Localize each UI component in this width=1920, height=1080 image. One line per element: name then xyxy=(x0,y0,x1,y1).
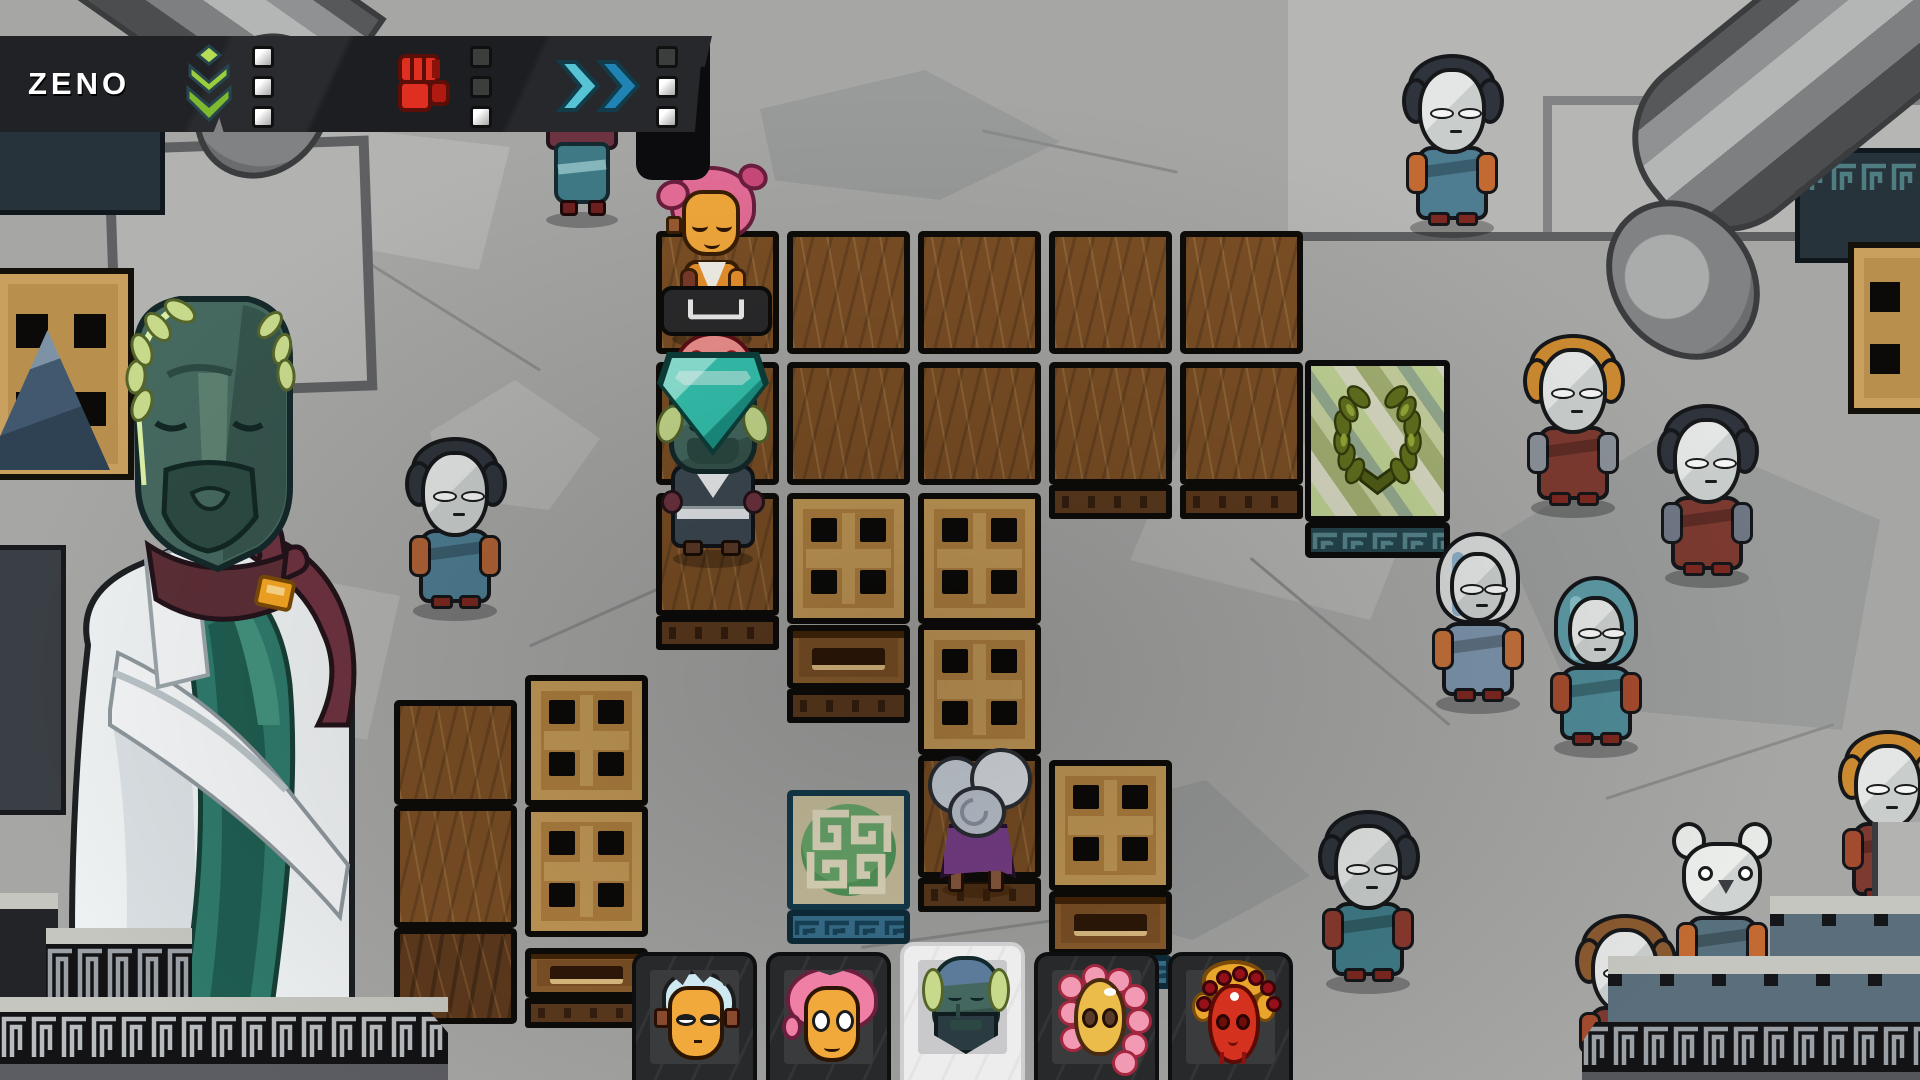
tile-edge xyxy=(787,689,910,723)
meander-steps xyxy=(1582,1022,1920,1072)
tile-crate xyxy=(918,624,1041,755)
tile-crate xyxy=(525,806,648,937)
tile-floor xyxy=(918,362,1041,485)
fist-charge-2 xyxy=(470,76,492,98)
steps xyxy=(1608,956,1920,974)
party-portrait-pink[interactable] xyxy=(766,952,891,1080)
tile-crate xyxy=(525,675,648,806)
steps xyxy=(1608,974,1920,1022)
tile-goal_meander xyxy=(787,790,910,910)
tile-floor xyxy=(394,700,517,805)
tile-floor xyxy=(787,362,910,485)
tile-crate_slot xyxy=(787,625,910,689)
spacebar-key-icon xyxy=(688,299,744,319)
steps-base xyxy=(1582,1072,1920,1080)
tile-floor xyxy=(787,231,910,354)
npc-masked-citizen xyxy=(395,433,515,623)
hud-bar: ZENO xyxy=(0,36,712,132)
steps xyxy=(1770,896,1920,914)
game-viewport[interactable]: ZENO xyxy=(0,0,1920,1080)
sprout-charge-3 xyxy=(252,106,274,128)
tile-floor xyxy=(1180,362,1303,485)
floor-slab xyxy=(760,70,1060,200)
tile-edge xyxy=(525,998,648,1028)
tile-floor xyxy=(1049,231,1172,354)
meander-steps xyxy=(0,1012,448,1064)
npc-hooded xyxy=(1536,570,1656,760)
fist-icon xyxy=(396,52,452,121)
party-bar xyxy=(632,952,1300,1080)
party-portrait-blue[interactable] xyxy=(632,952,757,1080)
sprout-charge-2 xyxy=(252,76,274,98)
storage-crate xyxy=(1848,242,1920,414)
tile-floor xyxy=(1180,231,1303,354)
dash-icon xyxy=(556,58,648,119)
tile-crate xyxy=(1049,760,1172,891)
walkway-edge xyxy=(1543,96,1552,232)
npc-masked-citizen xyxy=(1308,806,1428,996)
sprout-charge-1 xyxy=(252,46,274,68)
tile-crate xyxy=(787,493,910,624)
npc-masked-citizen xyxy=(1392,50,1512,240)
steps xyxy=(46,928,192,944)
tile-crate_slot xyxy=(1049,891,1172,955)
tile-edge xyxy=(1049,485,1172,519)
hero-cloud[interactable] xyxy=(914,746,1042,902)
steps-base xyxy=(0,1064,448,1080)
key-prompt xyxy=(660,286,772,336)
tile-crate_slot xyxy=(525,948,648,998)
party-portrait-statue-selected[interactable] xyxy=(900,942,1025,1080)
tile-floor xyxy=(918,231,1041,354)
player-name: ZENO xyxy=(28,66,130,102)
tile-crate xyxy=(918,493,1041,624)
dash-charge-1 xyxy=(656,46,678,68)
dash-charge-3 xyxy=(656,106,678,128)
npc-masked-citizen xyxy=(1513,330,1633,520)
tile-edge xyxy=(656,616,779,650)
sprout-icon xyxy=(186,44,232,131)
sprout-charges xyxy=(252,36,276,132)
dash-charges xyxy=(656,36,680,132)
npc-masked-citizen xyxy=(1647,400,1767,590)
tile-floor xyxy=(1049,362,1172,485)
party-portrait-petal[interactable] xyxy=(1034,952,1159,1080)
dash-charge-2 xyxy=(656,76,678,98)
party-portrait-crown[interactable] xyxy=(1168,952,1293,1080)
fist-charge-3 xyxy=(470,106,492,128)
tile-edge xyxy=(1180,485,1303,519)
steps xyxy=(0,893,58,909)
steps xyxy=(0,997,448,1012)
tile-goal_wreath xyxy=(1305,360,1450,522)
fist-charges xyxy=(470,36,494,132)
npc-hooded xyxy=(1418,526,1538,716)
tile-floor xyxy=(394,805,517,928)
fist-charge-1 xyxy=(470,46,492,68)
tile-goal_edge xyxy=(787,910,910,944)
